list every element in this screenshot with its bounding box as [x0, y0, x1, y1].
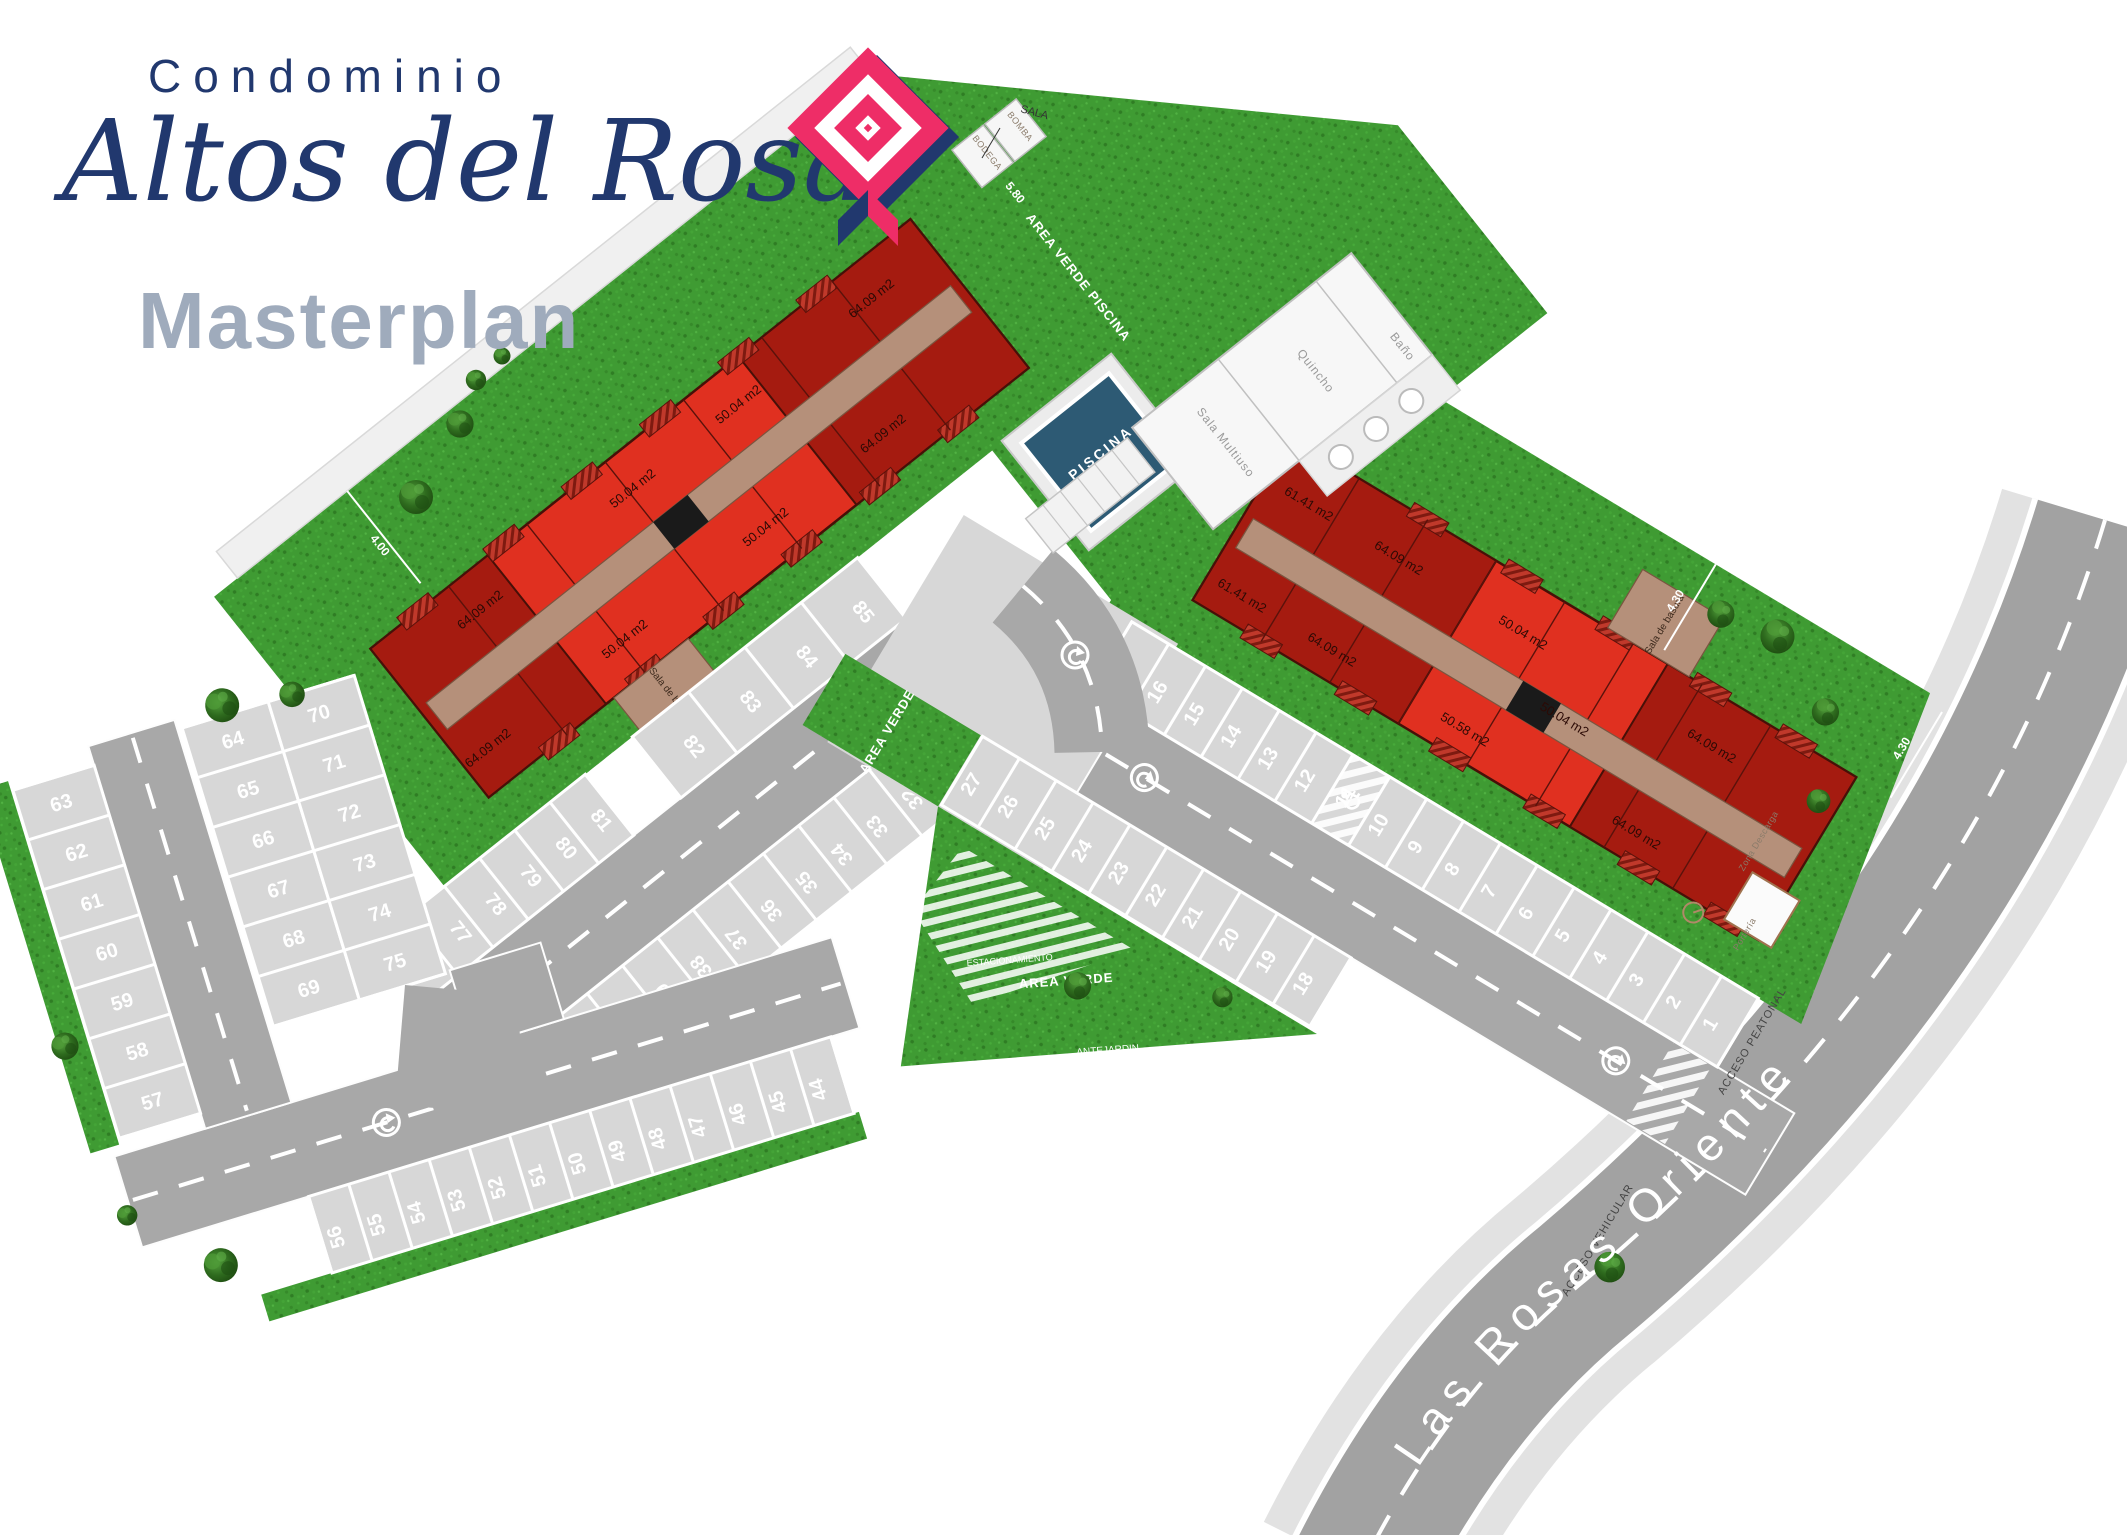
brand-condominio: Condominio [148, 50, 513, 102]
tree-icon [399, 480, 433, 514]
tree-icon [200, 1244, 242, 1286]
masterplan-title: Masterplan [138, 276, 580, 365]
siteplan-canvas: 4.00 Sala de basura 64.09 m264.09 m250.0… [0, 0, 2127, 1535]
brand-name: Altos del Rosal [53, 97, 905, 227]
tree-icon [466, 370, 486, 390]
road-junction-patch [395, 985, 530, 1115]
masterplan-page: 4.00 Sala de basura 64.09 m264.09 m250.0… [0, 0, 2127, 1535]
tree-icon [446, 410, 473, 437]
